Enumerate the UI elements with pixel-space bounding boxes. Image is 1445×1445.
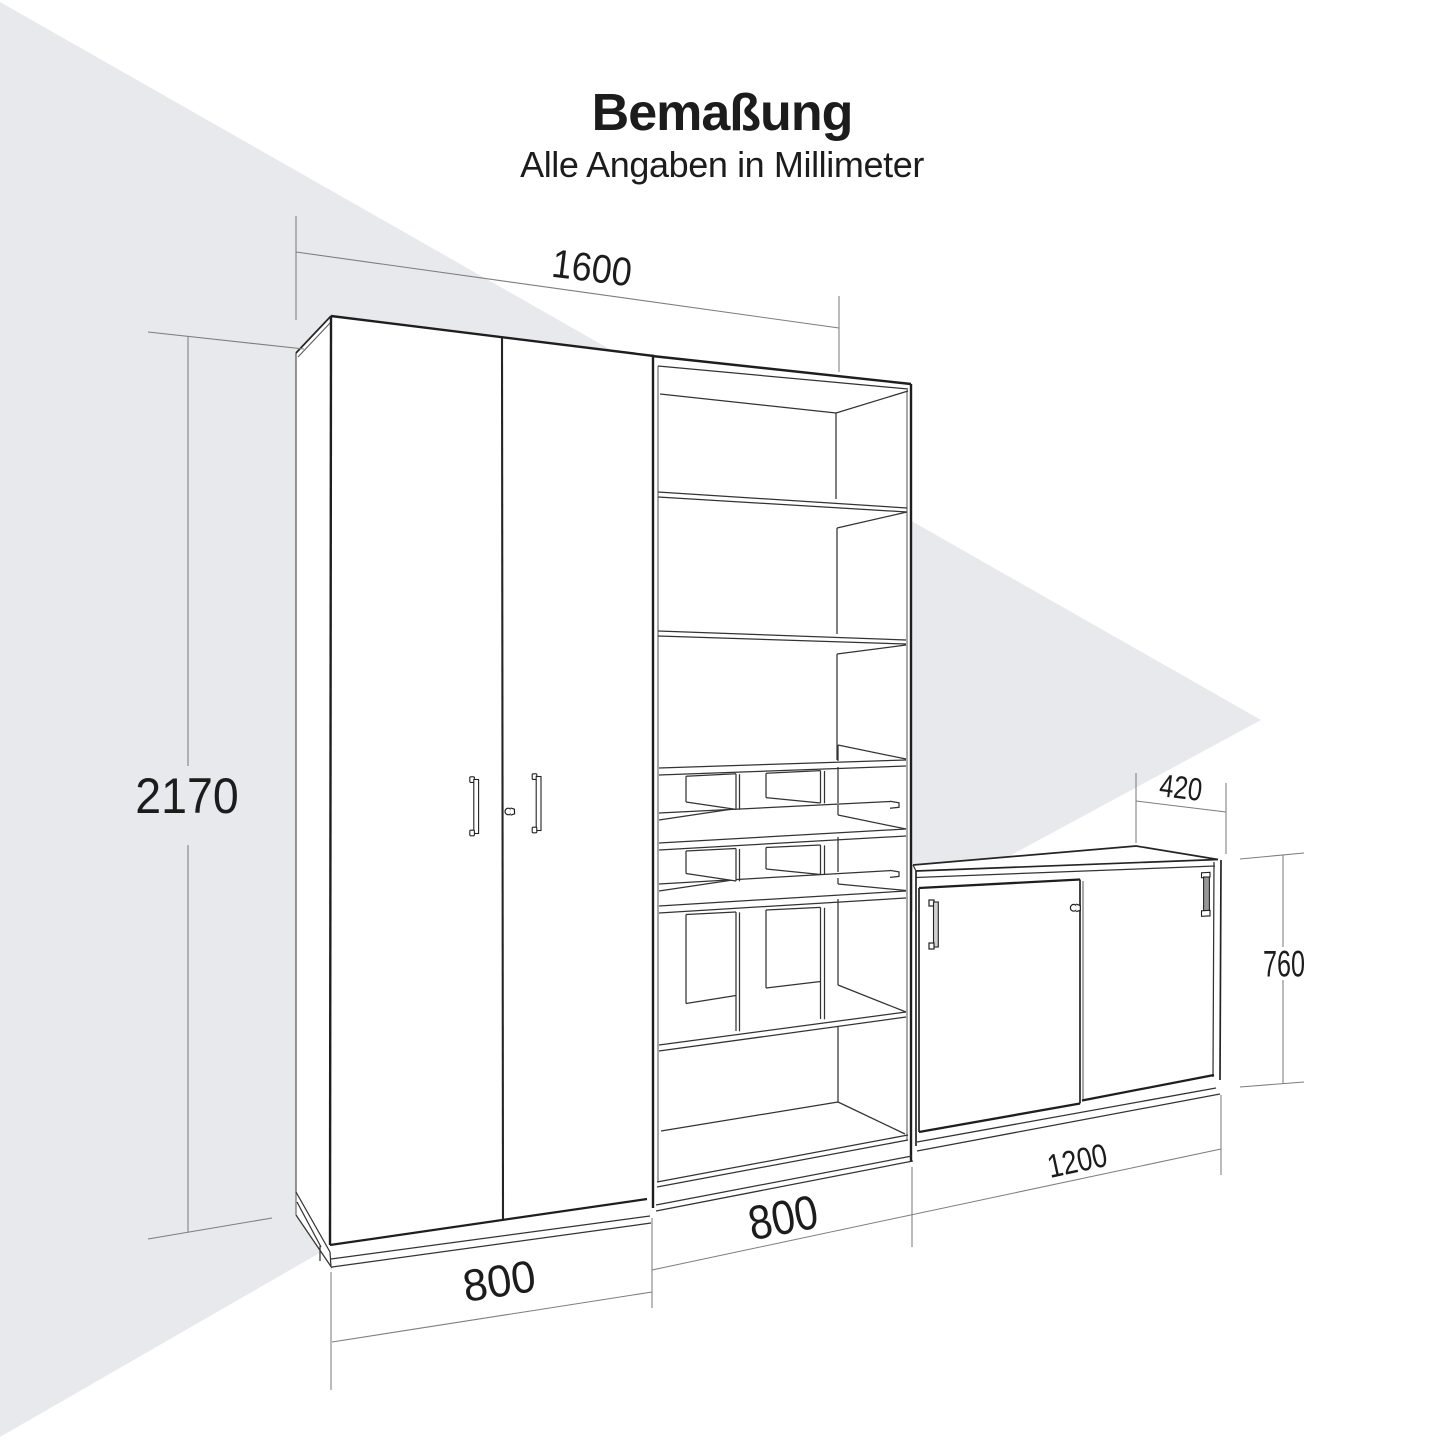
svg-text:1200: 1200 [1044, 1138, 1110, 1186]
svg-text:420: 420 [1157, 768, 1204, 808]
svg-text:Alle Angaben in Millimeter: Alle Angaben in Millimeter [520, 144, 924, 185]
svg-text:2170: 2170 [135, 768, 238, 824]
svg-text:800: 800 [459, 1251, 539, 1312]
svg-text:Bemaßung: Bemaßung [592, 84, 853, 142]
svg-text:760: 760 [1263, 943, 1305, 985]
svg-text:1600: 1600 [549, 242, 634, 296]
svg-text:800: 800 [744, 1184, 823, 1251]
